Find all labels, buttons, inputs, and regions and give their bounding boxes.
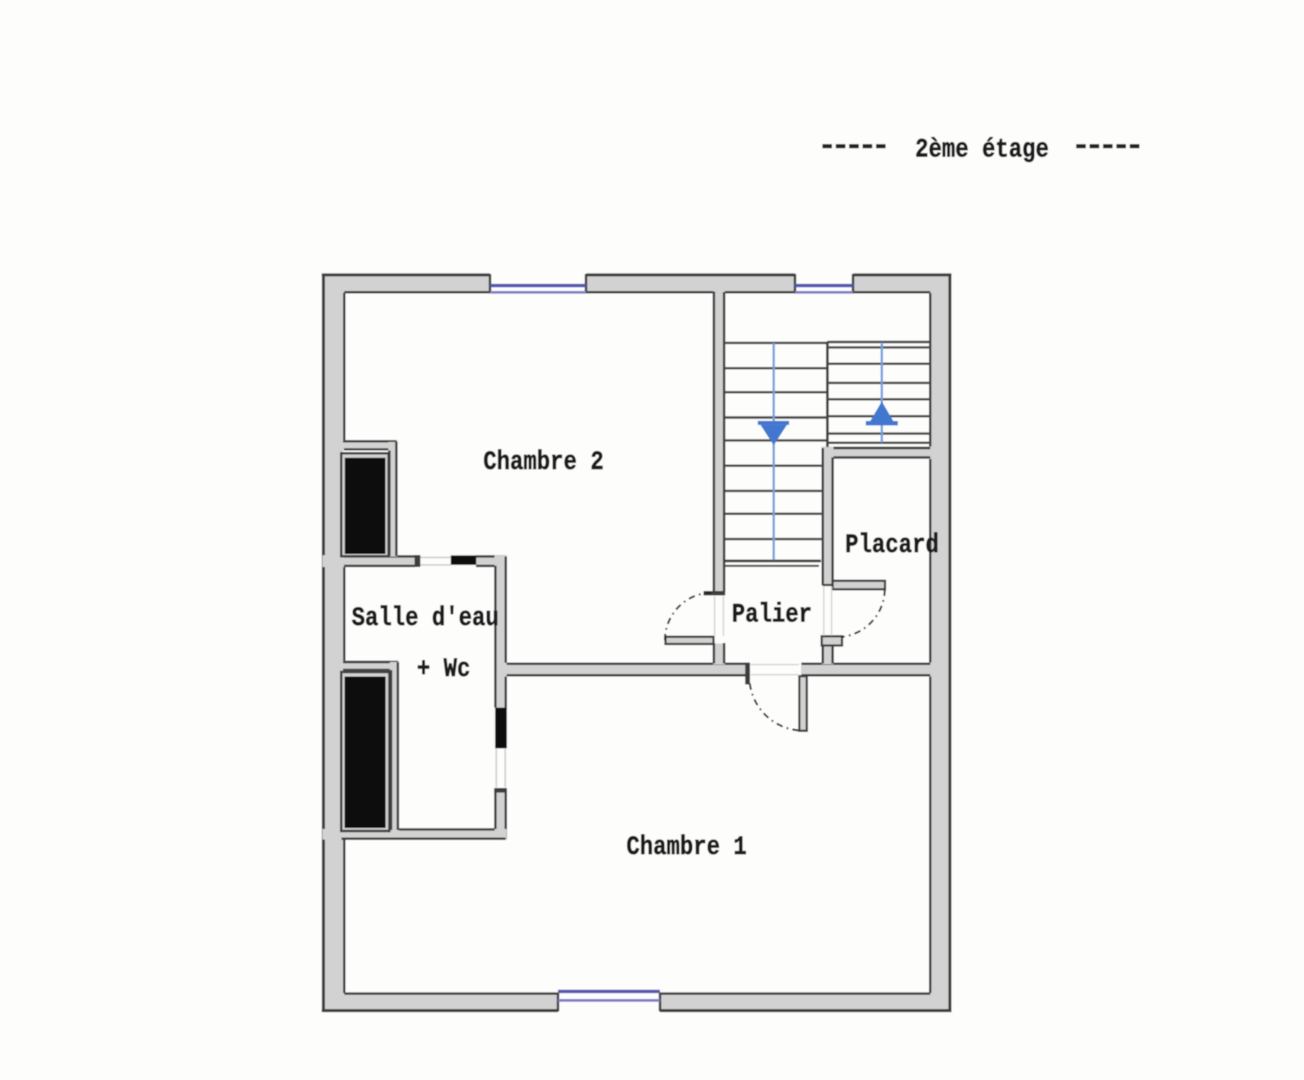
svg-text:Palier: Palier (732, 600, 812, 631)
svg-text:Chambre 2: Chambre 2 (483, 447, 603, 478)
svg-text:+ Wc: + Wc (417, 654, 471, 685)
svg-text:Placard: Placard (845, 530, 939, 561)
svg-text:Chambre 1: Chambre 1 (626, 832, 746, 863)
svg-text:2ème étage: 2ème étage (915, 134, 1049, 165)
svg-text:Salle d'eau: Salle d'eau (352, 603, 499, 634)
